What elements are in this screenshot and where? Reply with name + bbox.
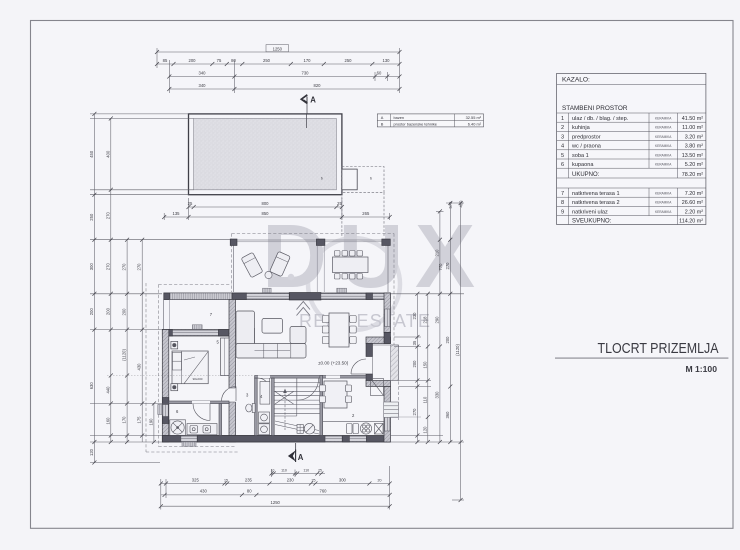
- svg-text:natkrivena terasa 2: natkrivena terasa 2: [572, 200, 620, 206]
- svg-text:200: 200: [412, 360, 417, 368]
- svg-text:9: 9: [561, 209, 564, 215]
- svg-text:760: 760: [320, 489, 328, 494]
- svg-text:730: 730: [302, 70, 310, 75]
- svg-text:32.55 m²: 32.55 m²: [466, 115, 482, 120]
- svg-text:b: b: [321, 177, 323, 181]
- svg-text:78.20 m²: 78.20 m²: [682, 172, 703, 178]
- svg-text:265: 265: [362, 211, 370, 216]
- svg-text:wc / praona: wc / praona: [571, 144, 602, 150]
- svg-text:450: 450: [89, 150, 94, 158]
- svg-text:soba 1: soba 1: [572, 153, 589, 159]
- svg-text:230: 230: [287, 477, 295, 482]
- svg-text:340: 340: [199, 83, 207, 88]
- svg-text:200: 200: [189, 58, 197, 63]
- svg-text:KERAMIKA: KERAMIKA: [655, 135, 672, 139]
- svg-text:200: 200: [122, 308, 127, 316]
- svg-text:150: 150: [422, 361, 427, 369]
- svg-text:B: B: [381, 121, 384, 126]
- svg-text:800: 800: [262, 201, 270, 206]
- svg-text:11.00 m²: 11.00 m²: [682, 125, 703, 131]
- svg-text:5.20 m²: 5.20 m²: [685, 162, 703, 168]
- svg-text:kuhinja: kuhinja: [572, 125, 591, 131]
- svg-text:200: 200: [105, 307, 110, 315]
- svg-text:DUX: DUX: [262, 207, 475, 307]
- svg-text:UKUPNO:: UKUPNO:: [572, 172, 600, 178]
- svg-text:630: 630: [89, 382, 94, 390]
- svg-text:KERAMIKA: KERAMIKA: [655, 163, 672, 167]
- svg-text:110: 110: [303, 468, 309, 472]
- svg-text:(+23.50): (+23.50): [331, 361, 349, 366]
- svg-text:1: 1: [561, 116, 564, 122]
- svg-text:3: 3: [561, 134, 564, 140]
- svg-text:430: 430: [200, 489, 208, 494]
- svg-text:575: 575: [448, 201, 453, 209]
- svg-text:KERAMIKA: KERAMIKA: [655, 153, 672, 157]
- svg-text:270: 270: [105, 212, 110, 220]
- svg-text:230: 230: [412, 312, 417, 320]
- svg-text:8: 8: [561, 200, 564, 206]
- svg-text:KERAMIKA: KERAMIKA: [655, 210, 672, 214]
- svg-text:natkrivena terasa 1: natkrivena terasa 1: [572, 191, 620, 197]
- svg-text:60: 60: [377, 70, 382, 75]
- svg-text:120: 120: [422, 426, 427, 434]
- svg-text:20: 20: [378, 478, 382, 482]
- svg-text:TLOCRT PRIZEMLJA: TLOCRT PRIZEMLJA: [598, 340, 719, 357]
- svg-text:2.20 m²: 2.20 m²: [685, 209, 703, 215]
- svg-text:770: 770: [438, 263, 443, 271]
- svg-text:A: A: [381, 115, 384, 120]
- svg-text:35: 35: [412, 340, 417, 345]
- svg-text:120: 120: [89, 448, 94, 456]
- svg-text:290: 290: [434, 316, 439, 324]
- svg-text:kupaona: kupaona: [572, 162, 594, 168]
- svg-text:325: 325: [192, 477, 200, 482]
- svg-text:250: 250: [263, 58, 271, 63]
- svg-text:KERAMIKA: KERAMIKA: [655, 117, 672, 121]
- svg-text:predprostor: predprostor: [572, 134, 601, 140]
- svg-text:80: 80: [247, 489, 252, 494]
- svg-text:7.20 m²: 7.20 m²: [685, 191, 703, 197]
- svg-text:26.60 m²: 26.60 m²: [682, 200, 703, 206]
- svg-text:80: 80: [231, 58, 236, 63]
- svg-text:300: 300: [89, 263, 94, 271]
- svg-text:KERAMIKA: KERAMIKA: [655, 144, 672, 148]
- svg-text:A: A: [310, 95, 316, 104]
- svg-text:235: 235: [245, 477, 253, 482]
- svg-text:2: 2: [561, 125, 564, 131]
- svg-text:210: 210: [434, 249, 439, 257]
- svg-text:REAL ESTATE: REAL ESTATE: [299, 311, 430, 331]
- svg-text:270: 270: [105, 263, 110, 271]
- svg-text:170: 170: [304, 58, 312, 63]
- svg-text:250: 250: [345, 58, 353, 63]
- svg-text:1250: 1250: [273, 46, 283, 51]
- svg-text:KAZALO:: KAZALO:: [562, 77, 590, 84]
- svg-text:430: 430: [137, 363, 142, 371]
- svg-text:85: 85: [163, 58, 168, 63]
- svg-text:1250: 1250: [271, 500, 281, 505]
- svg-text:400: 400: [459, 200, 464, 208]
- svg-text:135: 135: [173, 211, 181, 216]
- svg-text:75: 75: [217, 58, 222, 63]
- svg-text:STAMBENI PROSTOR: STAMBENI PROSTOR: [562, 105, 628, 112]
- svg-text:SVEUKUPNO:: SVEUKUPNO:: [572, 219, 612, 225]
- svg-text:110: 110: [281, 468, 287, 472]
- svg-text:130: 130: [383, 58, 391, 63]
- svg-text:M 1:100: M 1:100: [685, 364, 717, 374]
- svg-text:850: 850: [262, 211, 270, 216]
- svg-text:200: 200: [89, 308, 94, 316]
- svg-text:25: 25: [318, 468, 322, 472]
- svg-text:440: 440: [105, 386, 110, 394]
- svg-text:(1120): (1120): [455, 343, 460, 355]
- svg-text:prostor bazenske tehnike: prostor bazenske tehnike: [394, 121, 437, 126]
- svg-text:820: 820: [314, 83, 322, 88]
- svg-text:41.50 m²: 41.50 m²: [682, 116, 703, 122]
- svg-text:3.80 m²: 3.80 m²: [685, 144, 703, 150]
- svg-text:(1120): (1120): [122, 348, 127, 360]
- svg-text:400: 400: [105, 150, 110, 158]
- svg-text:330: 330: [434, 391, 439, 399]
- svg-text:25: 25: [188, 201, 193, 206]
- svg-text:3.20 m²: 3.20 m²: [685, 134, 703, 140]
- svg-text:KERAMIKA: KERAMIKA: [655, 201, 672, 205]
- svg-text:natkriveni ulaz: natkriveni ulaz: [572, 209, 608, 215]
- svg-text:170: 170: [122, 416, 127, 424]
- svg-text:13.50 m²: 13.50 m²: [682, 153, 703, 159]
- svg-text:6.40 m²: 6.40 m²: [468, 121, 482, 126]
- svg-text:90x200: 90x200: [193, 377, 203, 381]
- svg-text:218: 218: [422, 316, 427, 324]
- svg-text:270: 270: [122, 263, 127, 271]
- svg-text:270: 270: [137, 263, 142, 271]
- svg-text:4: 4: [561, 144, 564, 150]
- svg-text:270: 270: [445, 262, 450, 270]
- svg-text:KERAMIKA: KERAMIKA: [655, 192, 672, 196]
- svg-text:25: 25: [337, 201, 342, 206]
- svg-text:ulaz / db. / blag. / step.: ulaz / db. / blag. / step.: [572, 116, 629, 122]
- svg-text:A: A: [298, 453, 304, 462]
- svg-text:250: 250: [89, 213, 94, 221]
- svg-text:340: 340: [199, 70, 207, 75]
- svg-text:KERAMIKA: KERAMIKA: [655, 126, 672, 130]
- svg-text:270: 270: [412, 408, 417, 416]
- svg-text:190: 190: [148, 418, 153, 426]
- svg-text:25: 25: [312, 478, 316, 482]
- svg-text:5: 5: [561, 153, 564, 159]
- svg-text:±0.00: ±0.00: [318, 361, 330, 366]
- svg-text:6: 6: [561, 162, 564, 168]
- svg-text:360: 360: [445, 411, 450, 419]
- svg-text:15: 15: [224, 478, 228, 482]
- svg-text:160: 160: [105, 417, 110, 425]
- svg-text:300: 300: [339, 477, 347, 482]
- svg-text:7: 7: [561, 191, 564, 197]
- svg-text:175: 175: [137, 416, 142, 424]
- svg-text:bazen: bazen: [394, 115, 405, 120]
- svg-text:110: 110: [422, 396, 427, 403]
- svg-text:114.20 m²: 114.20 m²: [679, 219, 703, 225]
- svg-text:200: 200: [445, 336, 450, 344]
- svg-text:b: b: [370, 177, 372, 181]
- svg-text:10: 10: [271, 468, 275, 472]
